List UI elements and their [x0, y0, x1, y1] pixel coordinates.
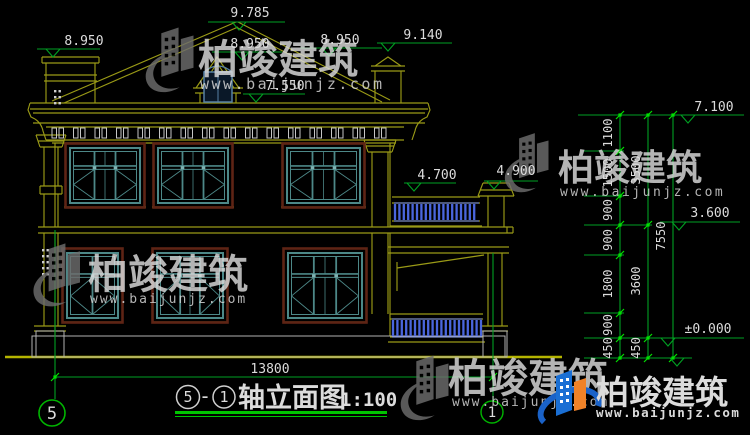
drawing-title: 5 - 1 轴立面图 1:100	[177, 382, 398, 414]
elevation-value-ground: ±0.000	[685, 322, 732, 337]
elevation-marker-balcony-rail	[404, 183, 456, 191]
porch-column	[482, 253, 508, 331]
elevation-value-dormer: 7.550	[265, 79, 304, 94]
title-name: 轴立面图	[238, 382, 346, 414]
axis-bubble-left-label: 5	[47, 404, 57, 424]
elevation-value-second-floor: 3.600	[690, 206, 729, 221]
elevation-marker-left-parapet	[37, 49, 100, 57]
watermark-right: 柏竣建筑 www.baijunjz.com	[505, 133, 725, 200]
porch-beam	[388, 247, 509, 253]
title-axis-to: 1	[219, 388, 228, 406]
title-scale: 1:100	[340, 389, 397, 411]
watermark-url: www.baijunjz.com	[90, 292, 247, 307]
watermark-left: 柏竣建筑 www.baijunjz.com	[33, 243, 248, 307]
title-separator: -	[199, 384, 211, 408]
title-underline-thin	[175, 416, 387, 417]
title-axis-from: 5	[183, 388, 192, 406]
brand-url: www.baijunjz.com	[596, 405, 740, 420]
dim-inner-3: 900	[601, 229, 615, 251]
left-pedestal	[36, 331, 64, 357]
elevation-marker-chimney	[377, 43, 452, 51]
balcony-pillar	[478, 183, 514, 227]
elevation-marker-eave	[681, 115, 695, 123]
elevation-marker-dormer	[243, 94, 305, 102]
dim-inner-0: 1100	[601, 119, 615, 148]
baijun-logo-icon	[505, 133, 549, 192]
left-parapet	[42, 57, 99, 103]
elevation-value-mid-roof: 8.950	[230, 37, 269, 52]
elevation-value-balcony-rail: 4.700	[417, 168, 456, 183]
dim-middle-2: 450	[629, 337, 643, 359]
dim-inner-5: 900	[601, 314, 615, 336]
porch-stair-lines	[397, 255, 484, 291]
elevation-value-right-roof: 8.950	[320, 33, 359, 48]
elevation-marker-second-floor	[672, 222, 686, 230]
axis-bubble-right-label: 1	[488, 405, 496, 421]
dim-inner-6: 450	[601, 337, 615, 359]
cad-canvas: 柏竣建筑 www.baijunjz.com 柏竣建筑 www.baijunjz.…	[0, 0, 750, 435]
elevation-drawing: 柏竣建筑 www.baijunjz.com 柏竣建筑 www.baijunjz.…	[0, 0, 750, 435]
elevation-value-ridge: 9.785	[230, 6, 269, 21]
stone-base	[32, 336, 505, 357]
dim-total: 7550	[654, 222, 668, 251]
elevation-value-balcony-pillar: 4.900	[496, 164, 535, 179]
dim-inner-1: 1500	[601, 159, 615, 188]
brand-logo: 柏竣建筑 www.baijunjz.com	[541, 370, 741, 422]
dim-middle-1: 3600	[629, 267, 643, 296]
baijun-logo-icon	[146, 27, 194, 92]
railing-balusters	[392, 203, 482, 337]
dim-bottom-width: 13800	[250, 362, 289, 377]
watermark-url: www.baijunjz.com	[560, 185, 725, 200]
dentil-band	[52, 128, 386, 138]
elevation-value-eave: 7.100	[694, 100, 733, 115]
dim-inner-2: 900	[601, 199, 615, 221]
floor-band	[38, 227, 513, 233]
elevation-value-left-parapet: 8.950	[64, 34, 103, 49]
baijun-logo-icon	[401, 355, 449, 420]
dim-inner-4: 1800	[601, 270, 615, 299]
dim-middle-0: 3500	[629, 156, 643, 185]
right-pedestal	[483, 331, 507, 357]
elevation-value-chimney: 9.140	[403, 28, 442, 43]
